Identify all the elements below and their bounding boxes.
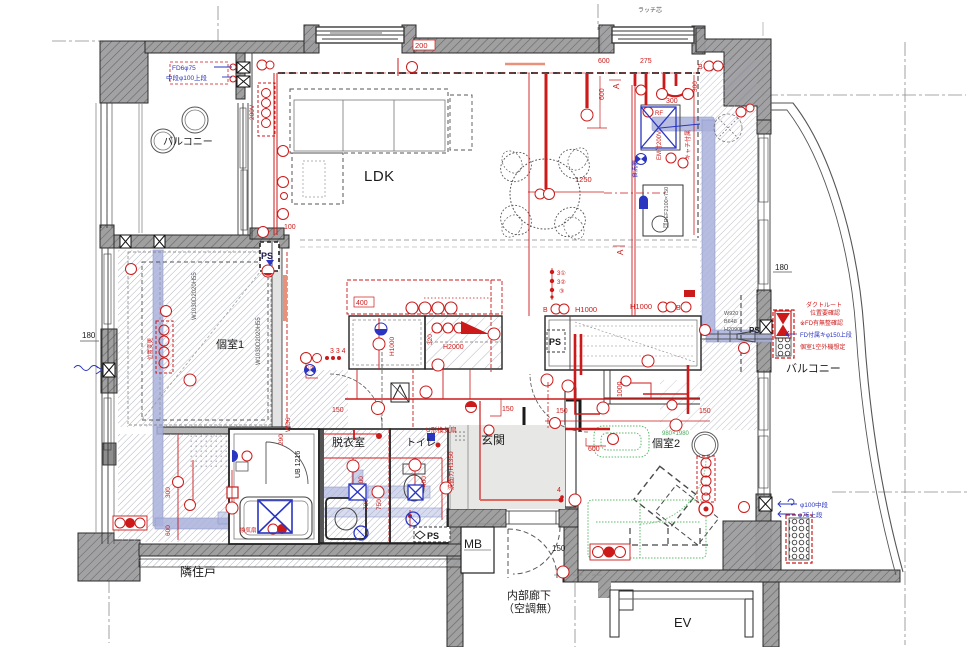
svg-text:食洗機: 食洗機: [631, 160, 639, 178]
svg-text:750: 750: [376, 499, 383, 510]
svg-text:W1030D2020H55: W1030D2020H55: [256, 317, 262, 365]
svg-text:A: A: [616, 249, 625, 255]
svg-text:RF: RF: [655, 111, 663, 117]
svg-text:3①: 3①: [557, 270, 566, 277]
svg-text:キャチ付属: キャチ付属: [684, 130, 692, 160]
svg-text:バルコニー: バルコニー: [786, 362, 841, 375]
svg-text:180: 180: [775, 263, 789, 272]
svg-text:脱衣室: 脱衣室: [332, 435, 365, 449]
svg-text:個室1: 個室1: [216, 337, 244, 351]
svg-text:H2090: H2090: [724, 327, 740, 333]
svg-text:位置要確認: 位置要確認: [810, 309, 840, 317]
svg-text:980×1980: 980×1980: [662, 431, 690, 437]
svg-text:200: 200: [415, 41, 428, 50]
svg-text:B: B: [698, 64, 703, 71]
svg-text:H2000: H2000: [443, 344, 464, 351]
svg-text:EV: EV: [674, 615, 692, 630]
svg-text:4: 4: [557, 487, 561, 494]
svg-text:290: 290: [278, 434, 285, 445]
svg-text:150: 150: [332, 407, 344, 414]
svg-text:中段φ100上段: 中段φ100上段: [166, 73, 208, 82]
svg-text:B: B: [543, 307, 548, 314]
svg-text:B648: B648: [724, 319, 737, 325]
svg-text:隣住戸: 隣住戸: [180, 564, 216, 579]
svg-text:トイレ: トイレ: [406, 438, 436, 449]
svg-text:ラッチ芯: ラッチ芯: [638, 6, 662, 14]
svg-text:FD6φ75: FD6φ75: [172, 65, 196, 72]
svg-text:H1000: H1000: [630, 302, 652, 311]
svg-text:MB: MB: [464, 537, 482, 551]
svg-text:ダクトルート: ダクトルート: [806, 301, 842, 309]
svg-text:150: 150: [699, 408, 711, 415]
svg-text:200V: 200V: [249, 104, 256, 120]
svg-text:PS: PS: [261, 251, 273, 261]
svg-text:275: 275: [640, 58, 652, 65]
svg-text:300: 300: [692, 81, 699, 92]
svg-text:PS: PS: [749, 326, 760, 335]
svg-text:150: 150: [502, 406, 514, 413]
svg-text:バルコニー: バルコニー: [163, 136, 213, 148]
svg-text:（空調無）: （空調無）: [503, 601, 558, 615]
svg-text:3②: 3②: [557, 279, 566, 286]
svg-text:300: 300: [666, 98, 678, 105]
svg-text:150: 150: [556, 408, 568, 415]
svg-text:φ75上段: φ75上段: [798, 510, 823, 519]
svg-text:PS: PS: [427, 531, 439, 541]
svg-text:3 3 4: 3 3 4: [330, 348, 346, 355]
svg-text:φ100中段: φ100中段: [800, 500, 829, 509]
svg-text:600: 600: [588, 446, 600, 453]
svg-text:LDK: LDK: [364, 168, 395, 185]
svg-text:600: 600: [165, 525, 172, 536]
svg-text:UB 1216: UB 1216: [295, 451, 302, 478]
svg-text:H1000: H1000: [575, 305, 597, 314]
svg-text:EM付200V: EM付200V: [655, 131, 663, 160]
svg-text:600: 600: [598, 58, 610, 65]
svg-text:W1030D2020H55: W1030D2020H55: [192, 272, 198, 320]
svg-text:内部廊下: 内部廊下: [507, 588, 551, 602]
svg-text:PS: PS: [549, 337, 561, 347]
svg-text:③: ③: [559, 288, 564, 295]
svg-text:A: A: [612, 83, 621, 89]
svg-text:個室1空外機想定: 個室1空外機想定: [800, 343, 845, 351]
svg-text:600: 600: [599, 88, 606, 100]
svg-text:位置変更: 位置変更: [146, 337, 154, 360]
svg-text:100: 100: [284, 224, 296, 231]
svg-text:150: 150: [552, 544, 566, 553]
svg-text:※FD有無整確認: ※FD有無整確認: [800, 319, 843, 327]
svg-text:WD6: WD6: [285, 417, 292, 432]
svg-text:玄関: 玄関: [481, 432, 505, 447]
svg-text:B: B: [676, 305, 681, 312]
svg-text:320: 320: [427, 334, 434, 345]
svg-text:400: 400: [356, 300, 368, 307]
svg-text:H1000: H1000: [389, 336, 396, 356]
svg-text:U形換気扇: U形換気扇: [426, 425, 457, 434]
svg-text:300: 300: [165, 487, 172, 498]
svg-text:1000: 1000: [617, 381, 624, 397]
svg-text:洗面カH1350: 洗面カH1350: [446, 451, 455, 490]
svg-text:換気扇: 換気扇: [240, 526, 257, 534]
svg-text:180: 180: [82, 331, 96, 340]
svg-text:個室2: 個室2: [652, 436, 680, 450]
svg-text:W920: W920: [724, 311, 738, 317]
svg-text:団REF2100×750: 団REF2100×750: [663, 187, 670, 228]
svg-text:1250: 1250: [575, 175, 592, 184]
svg-text:FD付属キφ150上段: FD付属キφ150上段: [800, 331, 852, 339]
